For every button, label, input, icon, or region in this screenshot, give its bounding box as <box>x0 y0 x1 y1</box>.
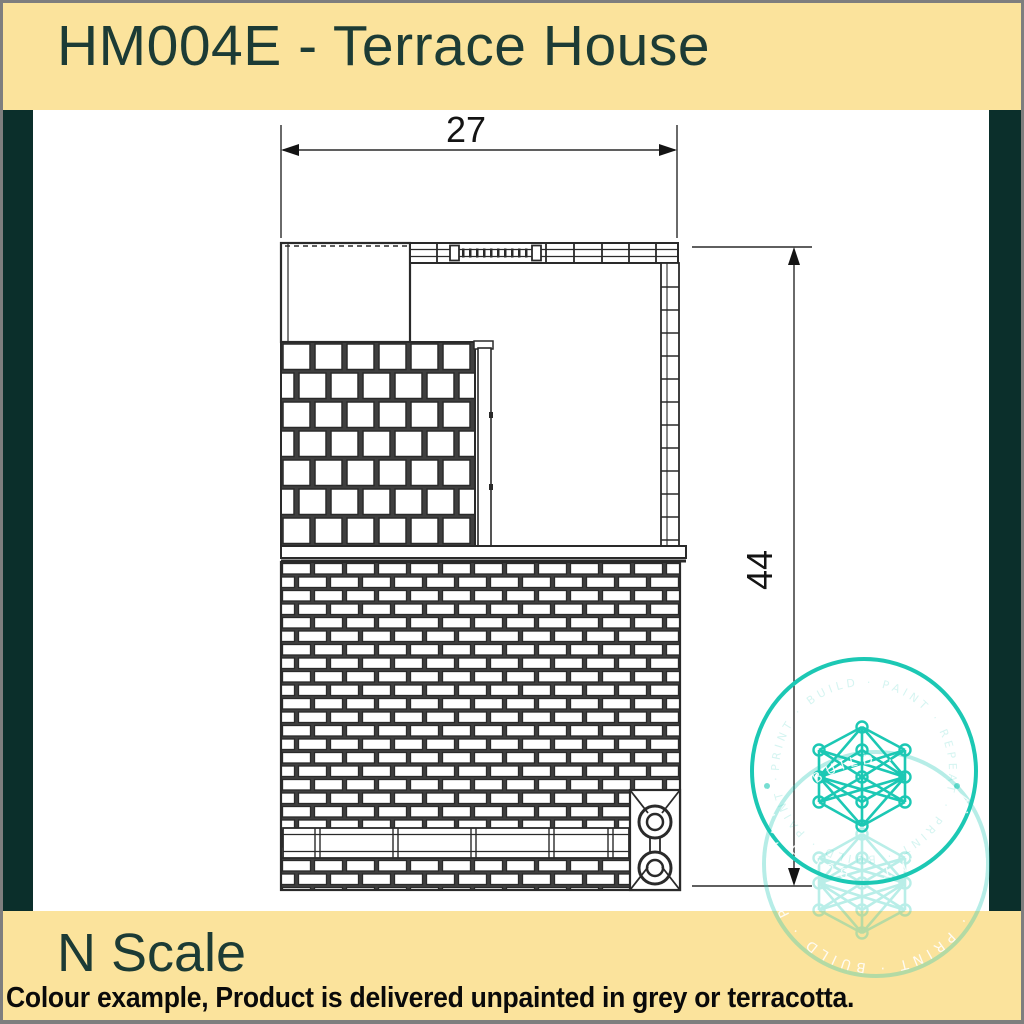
right-border-strip <box>989 110 1021 911</box>
bottom-banner: N Scale Colour example, Product is deliv… <box>3 911 1021 1020</box>
left-border-strip <box>3 110 33 911</box>
product-note: Colour example, Product is delivered unp… <box>6 982 854 1015</box>
top-banner: HM004E - Terrace House <box>3 3 1021 110</box>
page-frame: HM004E - Terrace House N Scale Colour ex… <box>0 0 1024 1024</box>
page-title: HM004E - Terrace House <box>57 13 710 79</box>
content-canvas: HM004E - Terrace House N Scale Colour ex… <box>3 3 1021 1020</box>
scale-label: N Scale <box>57 922 246 984</box>
